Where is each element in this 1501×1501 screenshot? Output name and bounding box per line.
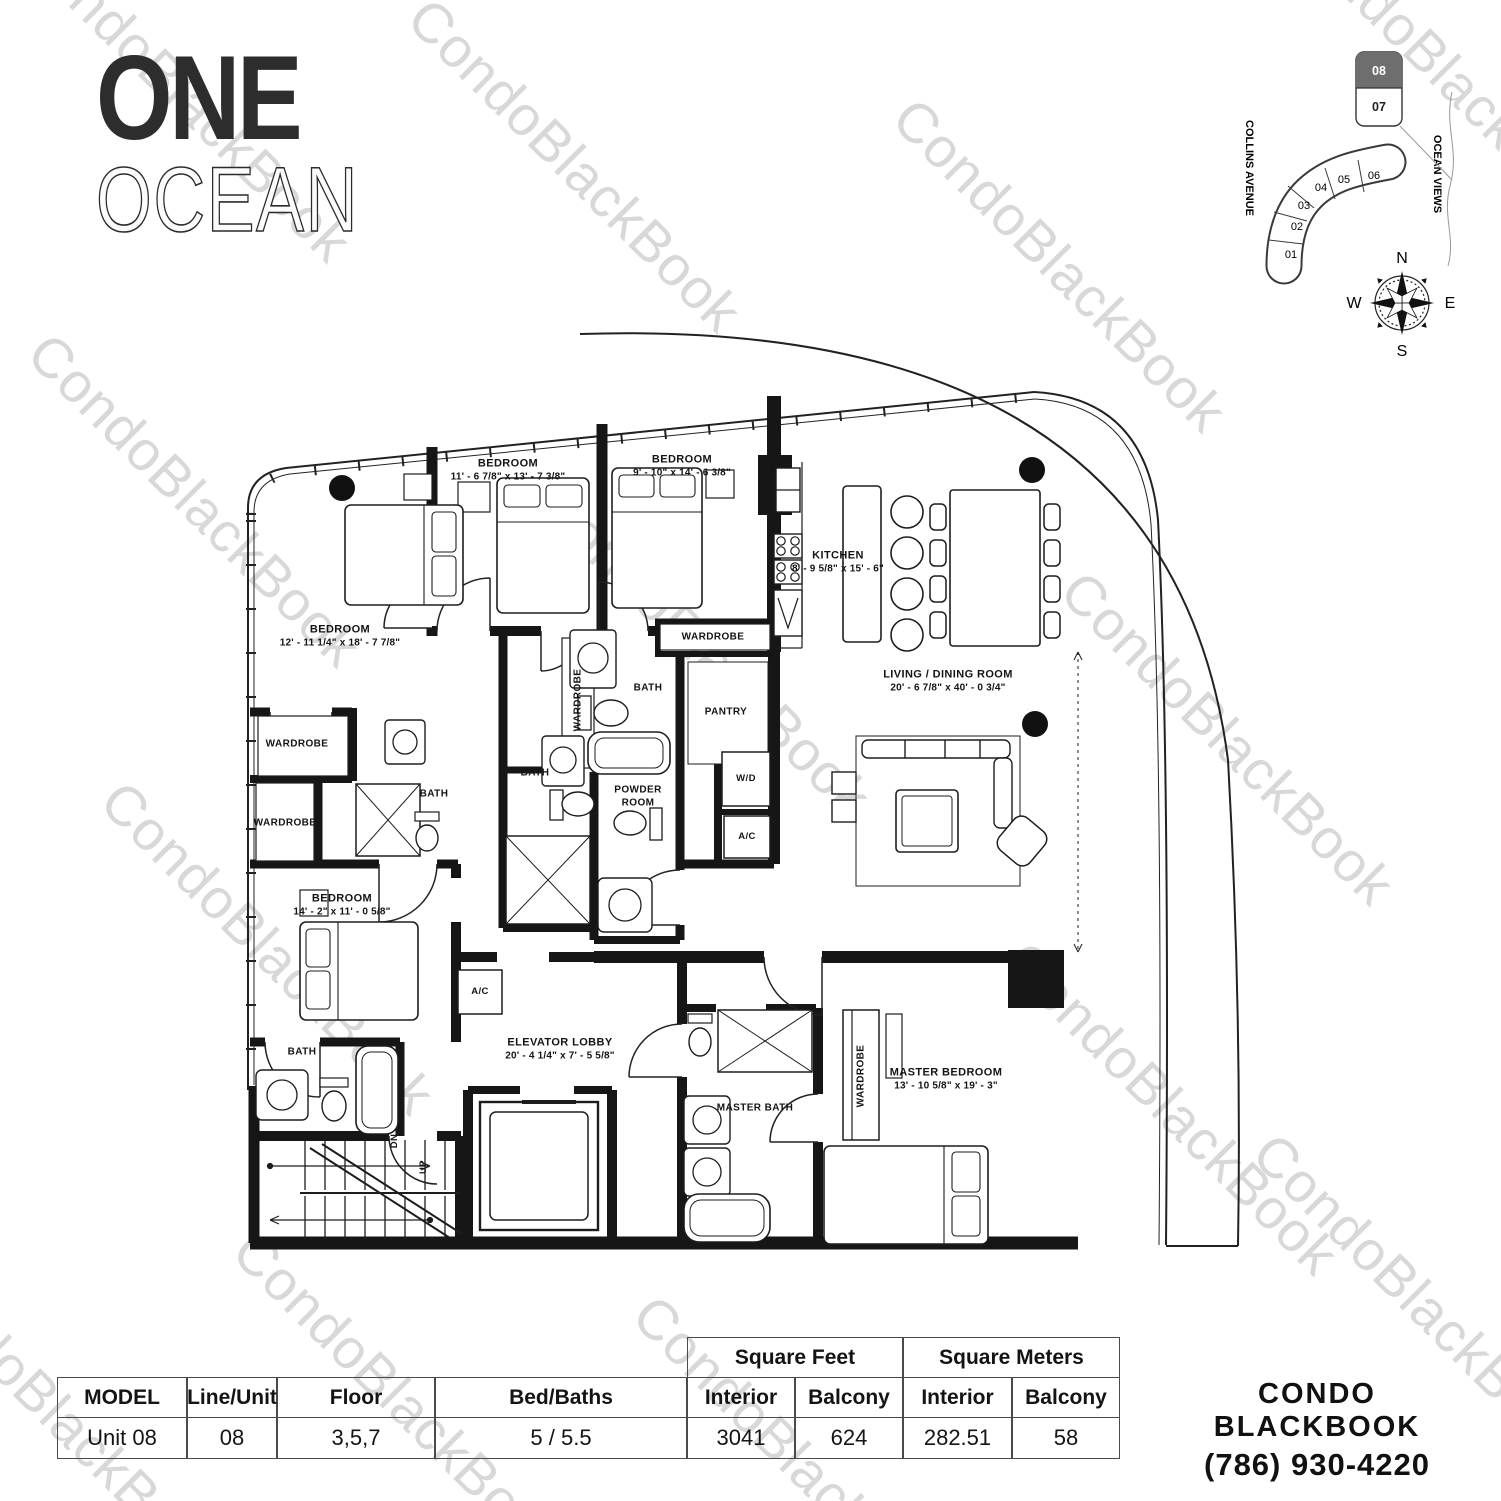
room-label-living-dining: LIVING / DINING ROOM20' - 6 7/8" x 40' -…	[883, 667, 1013, 694]
bath-label: BATH	[521, 767, 550, 780]
master-bath-label: MASTER BATH	[717, 1102, 793, 1115]
bed-icon	[824, 1146, 988, 1244]
footer-brand: CONDO BLACKBOOK	[1150, 1378, 1484, 1444]
col-header-model: MODEL	[57, 1377, 187, 1418]
bathroom-fixtures	[506, 736, 594, 924]
room-label-bedroom-3: BEDROOM12' - 11 1/4" x 18' - 7 7/8"	[280, 622, 400, 649]
site-unit-06: 06	[1368, 170, 1380, 182]
group-header-square-feet: Square Feet	[687, 1337, 903, 1378]
room-label-elevator-lobby: ELEVATOR LOBBY20' - 4 1/4" x 7' - 5 5/8"	[505, 1035, 615, 1062]
value-model: Unit 08	[57, 1417, 187, 1459]
compass-east: E	[1445, 295, 1456, 312]
page: CondoBlackBook CondoBlackBook CondoBlack…	[0, 0, 1501, 1501]
logo-line-one: ONE	[96, 52, 372, 146]
footer-brand-block: CONDO BLACKBOOK (786) 930-4220	[1150, 1378, 1484, 1483]
site-unit-02: 02	[1291, 221, 1303, 233]
dining-table-icon	[930, 490, 1060, 646]
group-header-square-meters: Square Meters	[903, 1337, 1120, 1378]
building-footprint: 01 02 03 04 05 06	[1269, 160, 1388, 266]
bed-icon	[612, 468, 734, 608]
wardrobe-label: WARDROBE	[682, 631, 745, 644]
compass-rose-icon: N S E W	[1346, 250, 1455, 360]
elevator-icon	[480, 1102, 598, 1230]
brand-logo: ONE OCEAN	[96, 52, 433, 246]
col-header-interior-sf: Interior	[687, 1377, 795, 1418]
bath-label: BATH	[420, 788, 449, 801]
site-unit-01: 01	[1285, 249, 1297, 261]
bar-stools-icon	[891, 496, 923, 651]
site-unit-03: 03	[1298, 200, 1310, 212]
ac-closet-label: A/C	[738, 831, 756, 843]
col-header-line-unit: Line/Unit	[187, 1377, 277, 1418]
wardrobe-label: WARDROBE	[254, 817, 317, 830]
col-header-floor: Floor	[277, 1377, 435, 1418]
room-label-bedroom-2: BEDROOM9' - 10" x 14' - 6 3/8"	[633, 452, 731, 479]
room-label-bedroom-1: BEDROOM11' - 6 7/8" x 13' - 7 3/8"	[451, 456, 566, 483]
wardrobe-label: WARDROBE	[855, 1045, 868, 1108]
stairs-up-label: UP	[418, 1160, 430, 1174]
value-balcony-sf: 624	[795, 1417, 903, 1459]
col-header-bed-baths: Bed/Baths	[435, 1377, 687, 1418]
furniture	[256, 462, 1082, 1244]
powder-room-label: POWDER ROOM	[606, 785, 670, 810]
compass-south: S	[1397, 343, 1408, 360]
powder-room-fixtures	[598, 808, 662, 932]
col-header-balcony-sf: Balcony	[795, 1377, 903, 1418]
bed-icon	[458, 478, 589, 613]
room-label-bedroom-4: BEDROOM14' - 2" x 11' - 0 5/8"	[293, 891, 390, 918]
value-balcony-sm: 58	[1012, 1417, 1120, 1459]
wardrobe-label: WARDROBE	[266, 738, 329, 751]
value-floor: 3,5,7	[277, 1417, 435, 1459]
site-map: COLLINS AVENUE OCEAN VIEWS 08 07 01 02 0…	[1243, 52, 1455, 360]
value-interior-sf: 3041	[687, 1417, 795, 1459]
logo-line-ocean: OCEAN	[96, 154, 359, 246]
bath-label: BATH	[288, 1046, 317, 1059]
tower-unit-07: 07	[1372, 100, 1386, 114]
coffee-table-icon	[896, 790, 958, 852]
column-post	[1008, 950, 1064, 1008]
pantry-label: PANTRY	[705, 706, 747, 719]
compass-north: N	[1396, 250, 1408, 267]
room-label-master-bedroom: MASTER BEDROOM13' - 10 5/8" x 19' - 3"	[890, 1065, 1003, 1092]
shoreline	[1400, 92, 1453, 266]
ac-closet-label: A/C	[471, 986, 489, 998]
washer-dryer-label: W/D	[736, 773, 756, 785]
stairs-icon	[268, 1140, 463, 1241]
footer-phone: (786) 930-4220	[1150, 1447, 1484, 1483]
value-bed-baths: 5 / 5.5	[435, 1417, 687, 1459]
tower-unit-08: 08	[1372, 64, 1386, 78]
stairs-dn-label: DN	[389, 1134, 401, 1149]
bath-label: BATH	[634, 682, 663, 695]
bathroom-fixtures	[256, 1046, 398, 1134]
ocean-views-label: OCEAN VIEWS	[1431, 135, 1443, 213]
master-bath-fixtures	[684, 1010, 812, 1242]
value-interior-sm: 282.51	[903, 1417, 1012, 1459]
value-line-unit: 08	[187, 1417, 277, 1459]
compass-west: W	[1346, 295, 1362, 312]
site-unit-05: 05	[1338, 174, 1350, 186]
dimension-line	[1074, 652, 1082, 952]
site-unit-04: 04	[1315, 182, 1327, 194]
collins-avenue-label: COLLINS AVENUE	[1243, 120, 1255, 216]
col-header-balcony-sm: Balcony	[1012, 1377, 1120, 1418]
wardrobe-label: WARDROBE	[572, 669, 585, 732]
room-label-kitchen: KITCHEN8' - 9 5/8" x 15' - 6"	[792, 548, 884, 575]
tower-block: 08 07	[1356, 52, 1402, 126]
col-header-interior-sm: Interior	[903, 1377, 1012, 1418]
bed-icon	[345, 474, 463, 605]
